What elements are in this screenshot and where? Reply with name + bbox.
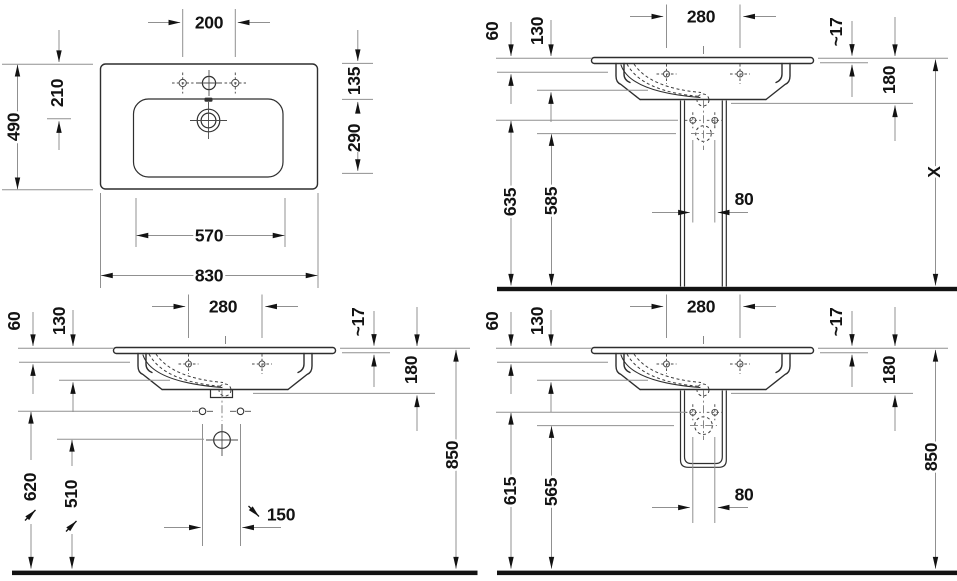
variable-arrow-se-icon [249, 506, 260, 517]
dim-label-tap-spacing: 200 [195, 13, 224, 33]
dim-label-fixing-height: 620 [20, 472, 40, 501]
dim-label-basin-depth: 180 [401, 355, 421, 384]
dim-label-tap-spacing: 280 [209, 297, 238, 317]
floor-line [497, 287, 957, 291]
dim-label-fixing-spacing: 80 [735, 189, 754, 209]
drawing-canvas: 200 490 210 135 290 570 830 [0, 0, 957, 581]
dim-label-basin-depth: 180 [879, 355, 899, 384]
dim-label-rim-drop-inner: 130 [527, 16, 547, 45]
dim-label-rim-drop-outer: 60 [4, 311, 24, 330]
floor-line [12, 571, 478, 576]
dim-label-rim-thickness: ~17 [826, 308, 846, 337]
floor-line [497, 571, 957, 576]
dim-label-overall-height: 850 [921, 442, 941, 471]
pedestal [681, 101, 727, 287]
dim-label-tap-spacing: 280 [687, 7, 716, 27]
dim-label-overall-depth: 490 [4, 112, 24, 141]
dim-label-rim-drop-outer: 60 [482, 311, 502, 330]
dim-label-rim-drop-inner: 130 [49, 306, 69, 335]
dim-label-outlet-height: 565 [541, 477, 561, 506]
outlet-stub [211, 390, 233, 398]
variable-arrow-ne-icon [66, 521, 77, 532]
dim-label-overall-height: X [924, 166, 944, 178]
overflow-slot [205, 98, 213, 102]
half-pedestal-dimension-lines [496, 350, 936, 569]
dim-label-rim-thickness: ~17 [826, 18, 846, 47]
dim-label-tap-spacing: 280 [687, 297, 716, 317]
variable-arrow-ne-icon [25, 510, 36, 521]
pedestal-fixing-holes [685, 100, 723, 150]
dim-label-overall-height: 850 [442, 440, 462, 469]
dim-label-rim-drop-inner: 130 [527, 306, 547, 335]
view-front-half-pedestal: 280 60 130 ~17 180 615 565 80 850 [482, 295, 957, 576]
dim-label-rim-drop-outer: 60 [482, 21, 502, 40]
dim-label-overall-width: 830 [195, 266, 224, 286]
technical-drawing: 200 490 210 135 290 570 830 [0, 0, 957, 581]
dim-label-outlet-height: 585 [541, 186, 561, 215]
dim-label-rim-thickness: ~17 [348, 308, 368, 337]
dim-label-basin-depth: 180 [879, 65, 899, 94]
dim-label-rear-to-outlet: 210 [47, 78, 67, 107]
dim-label-fixing-height: 635 [500, 187, 520, 216]
dim-label-fixing-height: 615 [500, 476, 520, 505]
drain [190, 102, 227, 139]
dim-label-bowl-depth: 290 [344, 123, 364, 152]
view-plan: 200 490 210 135 290 570 830 [2, 9, 373, 288]
half-pedestal-fixing-holes [685, 390, 723, 440]
view-front-wall-mounted: 280 60 130 ~17 180 620 510 150 850 [4, 295, 478, 576]
pedestal-dimension-lines [496, 60, 936, 286]
dim-label-outlet-height: 510 [61, 479, 81, 508]
tap-holes [172, 70, 246, 96]
waste-pipe [206, 424, 238, 456]
dim-label-fixing-spacing: 150 [267, 505, 296, 525]
wall-dimension-lines [18, 350, 456, 569]
dim-label-fixing-spacing: 80 [735, 485, 754, 505]
variable-dimension-arrows [25, 506, 259, 532]
dim-label-bowl-width: 570 [195, 226, 224, 246]
view-front-pedestal: 280 60 130 ~17 180 635 585 80 X [482, 5, 957, 292]
dim-label-rim-to-bowl: 135 [344, 66, 364, 95]
wall-fixing-bolts [192, 408, 251, 415]
